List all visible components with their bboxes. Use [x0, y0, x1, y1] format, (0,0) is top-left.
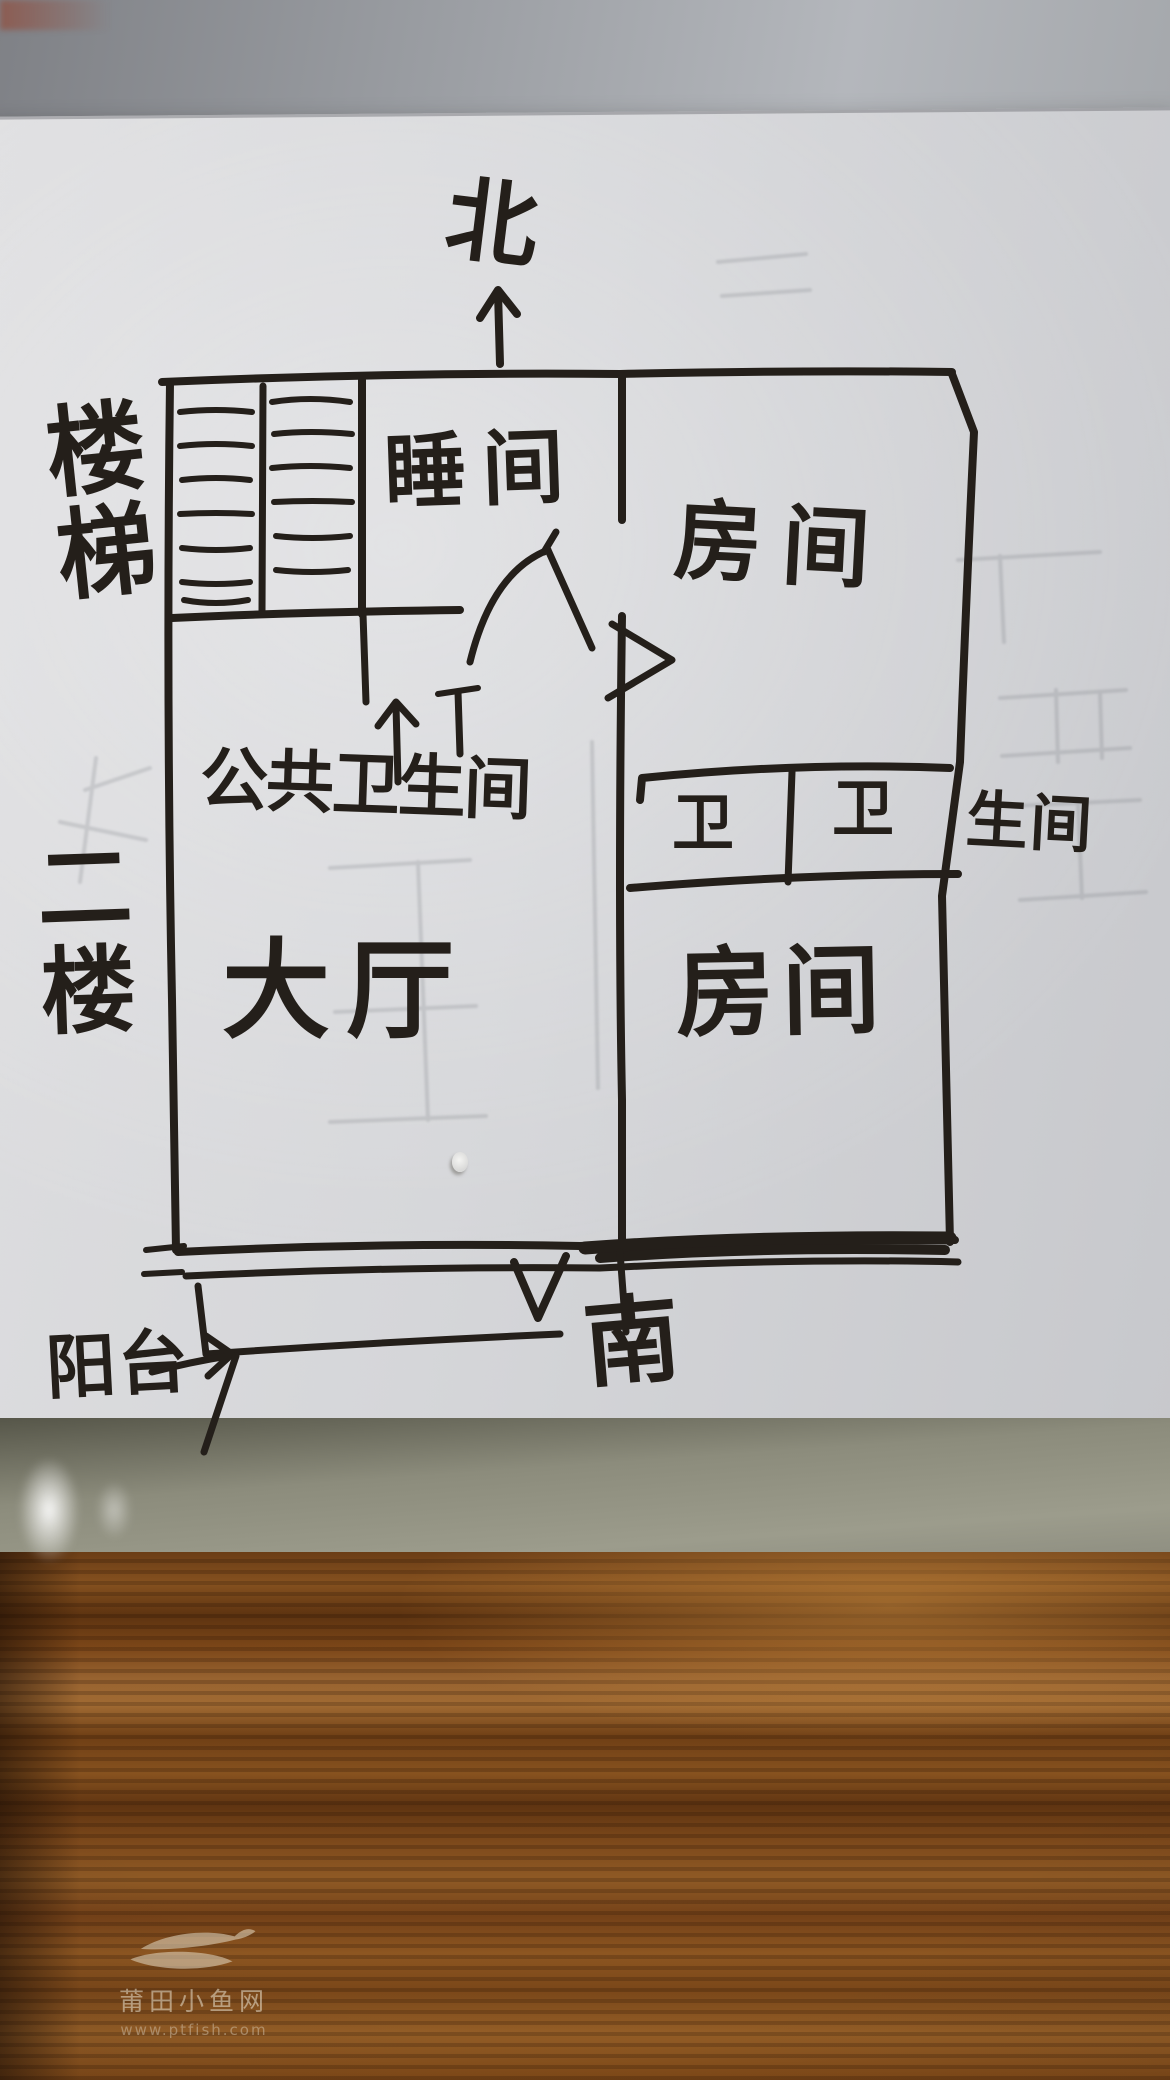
balcony-outline [198, 1286, 560, 1354]
label-stairs: 楼梯 [32, 393, 152, 608]
label-balcony: 阳台 [44, 1326, 191, 1403]
label-south: 南 [580, 1290, 684, 1394]
label-room-lower-right: 房间 [675, 942, 889, 1044]
label-wc-suffix: 生间 [964, 789, 1095, 858]
label-hall: 大厅 [222, 938, 470, 1046]
photo-of-hand-drawn-floor-plan: 北 楼梯 睡间 房间 公共卫生间 卫 卫 生间 二楼 大厅 房间 阳台 南 莆田… [0, 0, 1170, 2080]
watermark-site-url: www.ptfish.com [104, 2021, 284, 2039]
fish-logo-icon [119, 1926, 269, 1976]
label-room-upper-right: 房间 [672, 496, 892, 595]
label-second-floor: 二楼 [26, 836, 128, 1045]
floor-plan-drawing [0, 0, 1170, 2080]
label-shared-bathroom: 公共卫生间 [199, 746, 531, 825]
watermark: 莆田小鱼网 www.ptfish.com [104, 1926, 284, 2039]
north-arrow-icon [480, 290, 517, 364]
door-swing-marks [470, 532, 672, 698]
label-sleep-room: 睡间 [383, 427, 582, 516]
paper-speck [452, 1152, 468, 1172]
label-north: 北 [441, 173, 544, 276]
label-wc-left-cell: 卫 [672, 792, 734, 854]
label-wc-right-cell: 卫 [832, 778, 894, 840]
watermark-site-name: 莆田小鱼网 [104, 1982, 284, 2018]
